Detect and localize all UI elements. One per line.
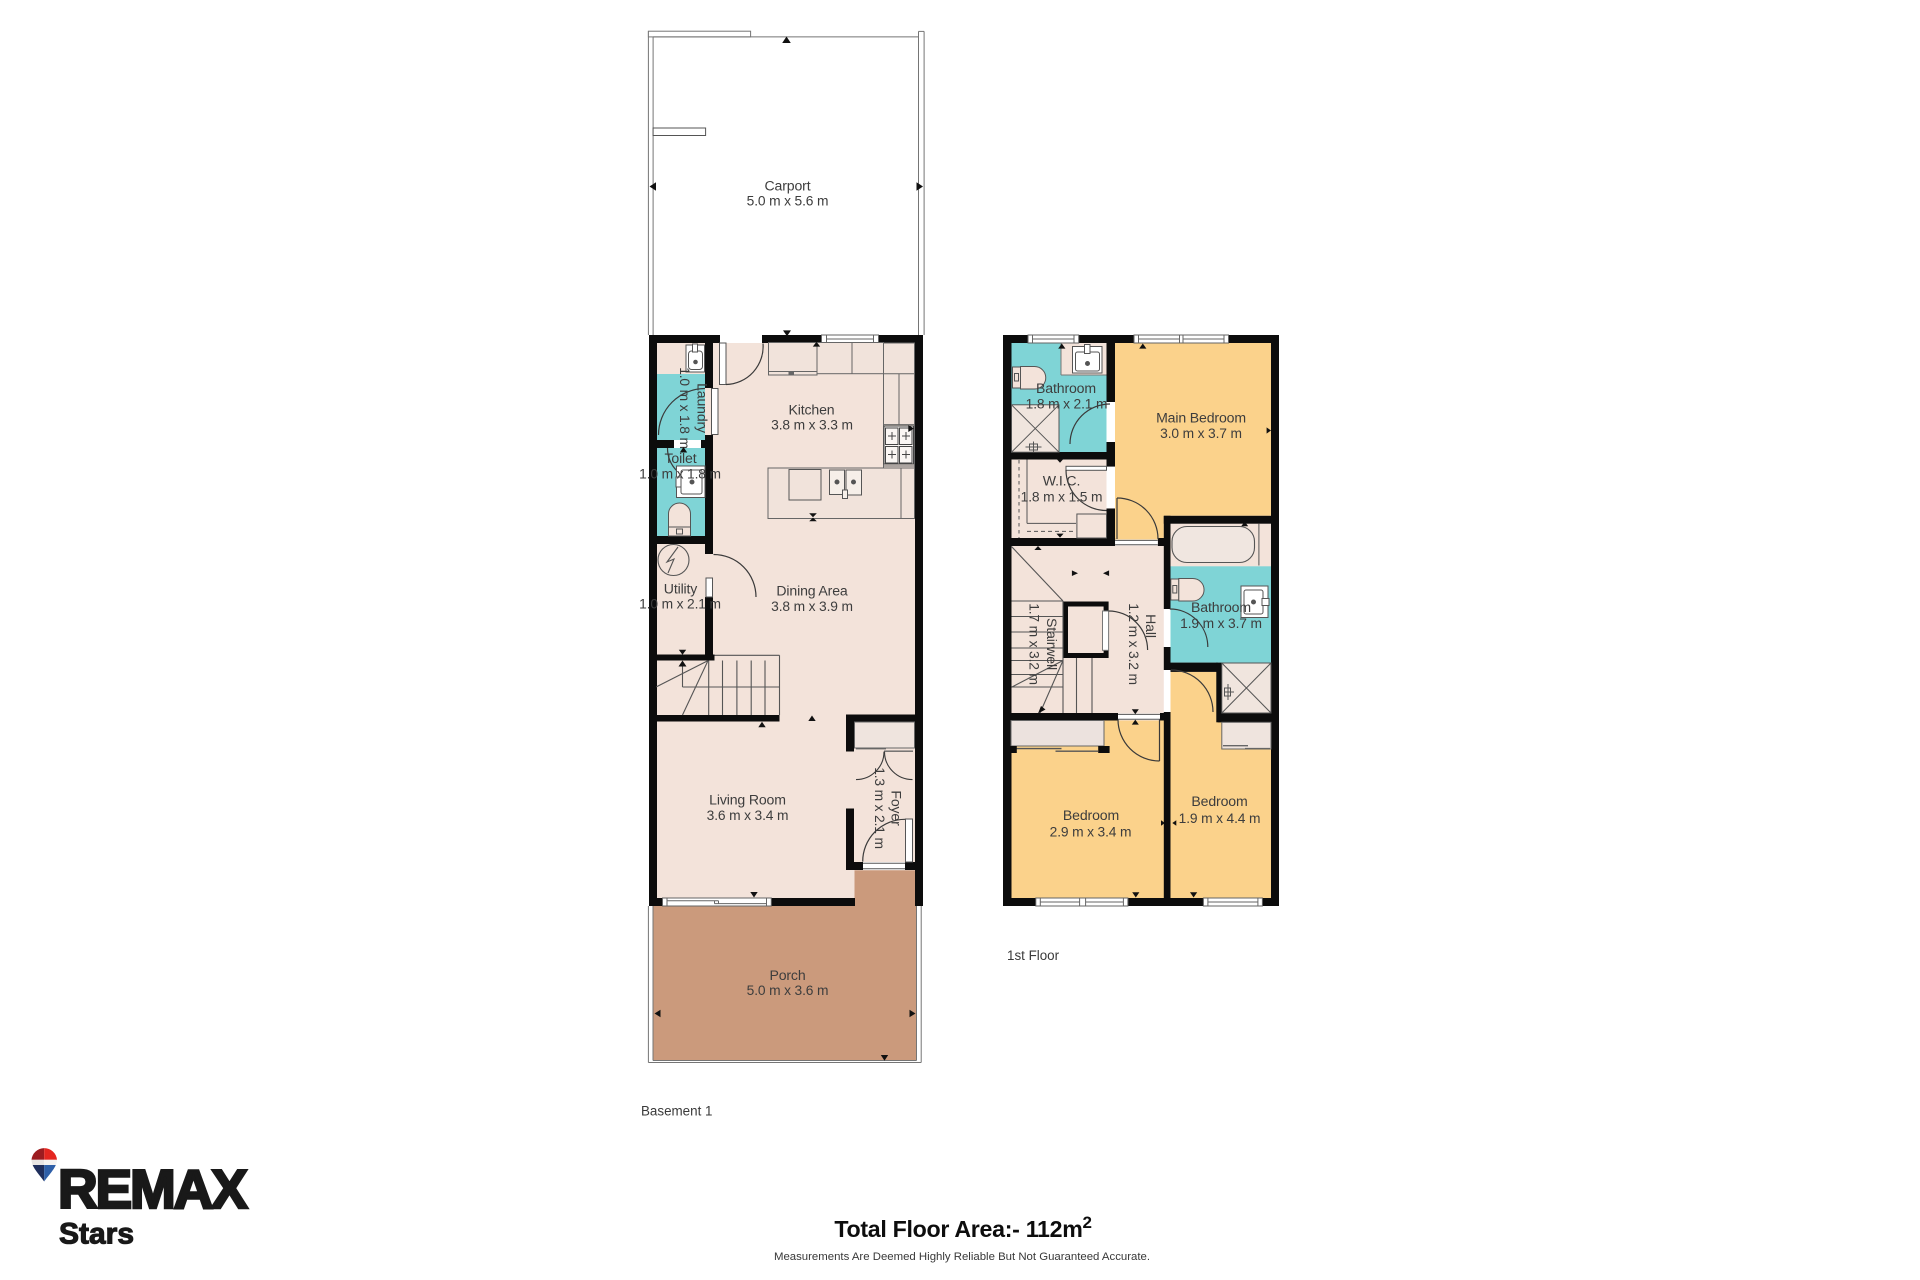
svg-text:Bathroom: Bathroom	[1036, 380, 1096, 396]
svg-text:5.0 m x 5.6 m: 5.0 m x 5.6 m	[747, 194, 829, 209]
svg-text:3.6 m x 3.4 m: 3.6 m x 3.4 m	[707, 808, 789, 823]
svg-text:Carport: Carport	[765, 178, 811, 194]
svg-text:Stairwell: Stairwell	[1044, 618, 1060, 670]
svg-text:1.3 m x 2.1 m: 1.3 m x 2.1 m	[872, 767, 887, 849]
svg-text:Main Bedroom: Main Bedroom	[1156, 410, 1246, 426]
svg-text:REMAX: REMAX	[58, 1158, 248, 1220]
svg-text:1.0 m x 1.8 m: 1.0 m x 1.8 m	[639, 467, 721, 482]
svg-text:Dining Area: Dining Area	[776, 583, 848, 599]
svg-text:Stars: Stars	[59, 1218, 134, 1251]
svg-text:Measurements Are Deemed Highly: Measurements Are Deemed Highly Reliable …	[774, 1251, 1150, 1263]
svg-text:3.0 m x 3.7 m: 3.0 m x 3.7 m	[1160, 426, 1242, 441]
svg-text:W.I.C.: W.I.C.	[1043, 473, 1080, 489]
svg-text:1.2 m x 3.2 m: 1.2 m x 3.2 m	[1126, 603, 1141, 685]
svg-text:Bedroom: Bedroom	[1191, 793, 1247, 809]
svg-text:1.9 m x 4.4 m: 1.9 m x 4.4 m	[1179, 811, 1261, 826]
svg-text:1.7 m x 3.2 m: 1.7 m x 3.2 m	[1027, 603, 1042, 685]
svg-text:Total Floor Area:- 112m2: Total Floor Area:- 112m2	[834, 1213, 1091, 1242]
svg-text:5.0 m x 3.6 m: 5.0 m x 3.6 m	[747, 983, 829, 998]
svg-text:1.0 m x 2.1 m: 1.0 m x 2.1 m	[639, 597, 721, 612]
svg-text:Kitchen: Kitchen	[789, 402, 835, 418]
svg-text:Bathroom: Bathroom	[1191, 599, 1251, 615]
svg-text:2.9 m x 3.4 m: 2.9 m x 3.4 m	[1050, 825, 1132, 840]
svg-text:Foyer: Foyer	[889, 790, 905, 826]
svg-text:Laundry: Laundry	[695, 383, 711, 434]
svg-text:3.8 m x 3.9 m: 3.8 m x 3.9 m	[771, 599, 853, 614]
svg-text:Living Room: Living Room	[709, 792, 786, 808]
svg-text:1.0 m x 1.8 m: 1.0 m x 1.8 m	[677, 367, 692, 449]
svg-text:1.8 m x 2.1 m: 1.8 m x 2.1 m	[1026, 397, 1108, 412]
svg-text:Hall: Hall	[1143, 614, 1159, 638]
svg-text:Bedroom: Bedroom	[1063, 807, 1119, 823]
svg-text:Basement 1: Basement 1	[641, 1104, 712, 1119]
svg-text:Utility: Utility	[664, 581, 699, 597]
svg-text:1.9 m x 3.7 m: 1.9 m x 3.7 m	[1180, 616, 1262, 631]
svg-text:Porch: Porch	[769, 967, 805, 983]
svg-text:3.8 m x 3.3 m: 3.8 m x 3.3 m	[771, 418, 853, 433]
svg-text:1st Floor: 1st Floor	[1007, 948, 1060, 963]
svg-text:1.8 m x 1.5 m: 1.8 m x 1.5 m	[1021, 490, 1103, 505]
